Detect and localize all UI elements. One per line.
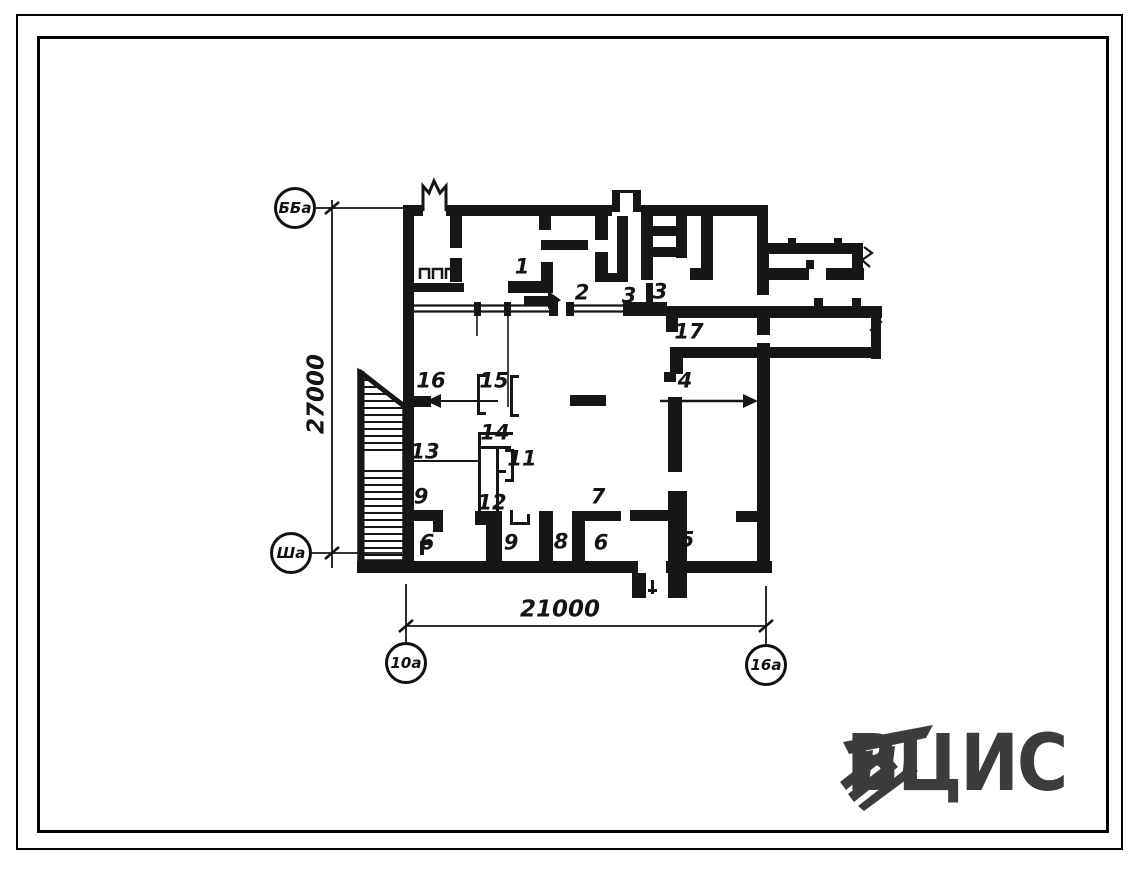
- axis-marker-10a: 10а: [385, 642, 427, 684]
- room-label: 6: [420, 533, 435, 554]
- axis-marker-16a: 16а: [745, 644, 787, 686]
- room-label: 17: [674, 322, 703, 343]
- room-label: 9: [504, 533, 519, 554]
- room-label: 14: [480, 423, 509, 444]
- room-label: 1: [515, 257, 530, 278]
- room-label: 11: [507, 449, 536, 470]
- room-label: 4: [678, 371, 693, 392]
- axis-marker-label: 16а: [751, 658, 782, 673]
- room-label: 2: [575, 283, 590, 304]
- axis-marker-bba: ББа: [274, 187, 316, 229]
- dimension-vertical: 27000: [306, 354, 329, 434]
- logo-text: ВЦИС: [846, 724, 1066, 802]
- room-label: 5: [680, 530, 695, 551]
- dimension-horizontal: 21000: [520, 599, 600, 622]
- axis-marker-label: Ша: [277, 546, 306, 561]
- room-label: 9: [414, 487, 429, 508]
- room-label: 6: [594, 533, 609, 554]
- room-label: 12: [477, 493, 506, 514]
- axis-marker-label: ББа: [279, 201, 312, 216]
- staircase-symbol: [352, 371, 408, 561]
- room-label: 3: [622, 286, 637, 307]
- room-label: 13: [410, 442, 439, 463]
- axis-marker-sha: Ша: [270, 532, 312, 574]
- drawing-sheet: ББа Ша 10а 16а 27000 21000 1 2 3 3 17 4 …: [0, 0, 1139, 869]
- room-label: 15: [479, 371, 508, 392]
- axis-marker-label: 10а: [391, 656, 422, 671]
- room-label: 3: [653, 282, 668, 303]
- room-label: 8: [554, 532, 569, 553]
- logo: ВЦИС: [840, 718, 1066, 794]
- room-label: 7: [591, 487, 606, 508]
- room-label: 16: [416, 371, 445, 392]
